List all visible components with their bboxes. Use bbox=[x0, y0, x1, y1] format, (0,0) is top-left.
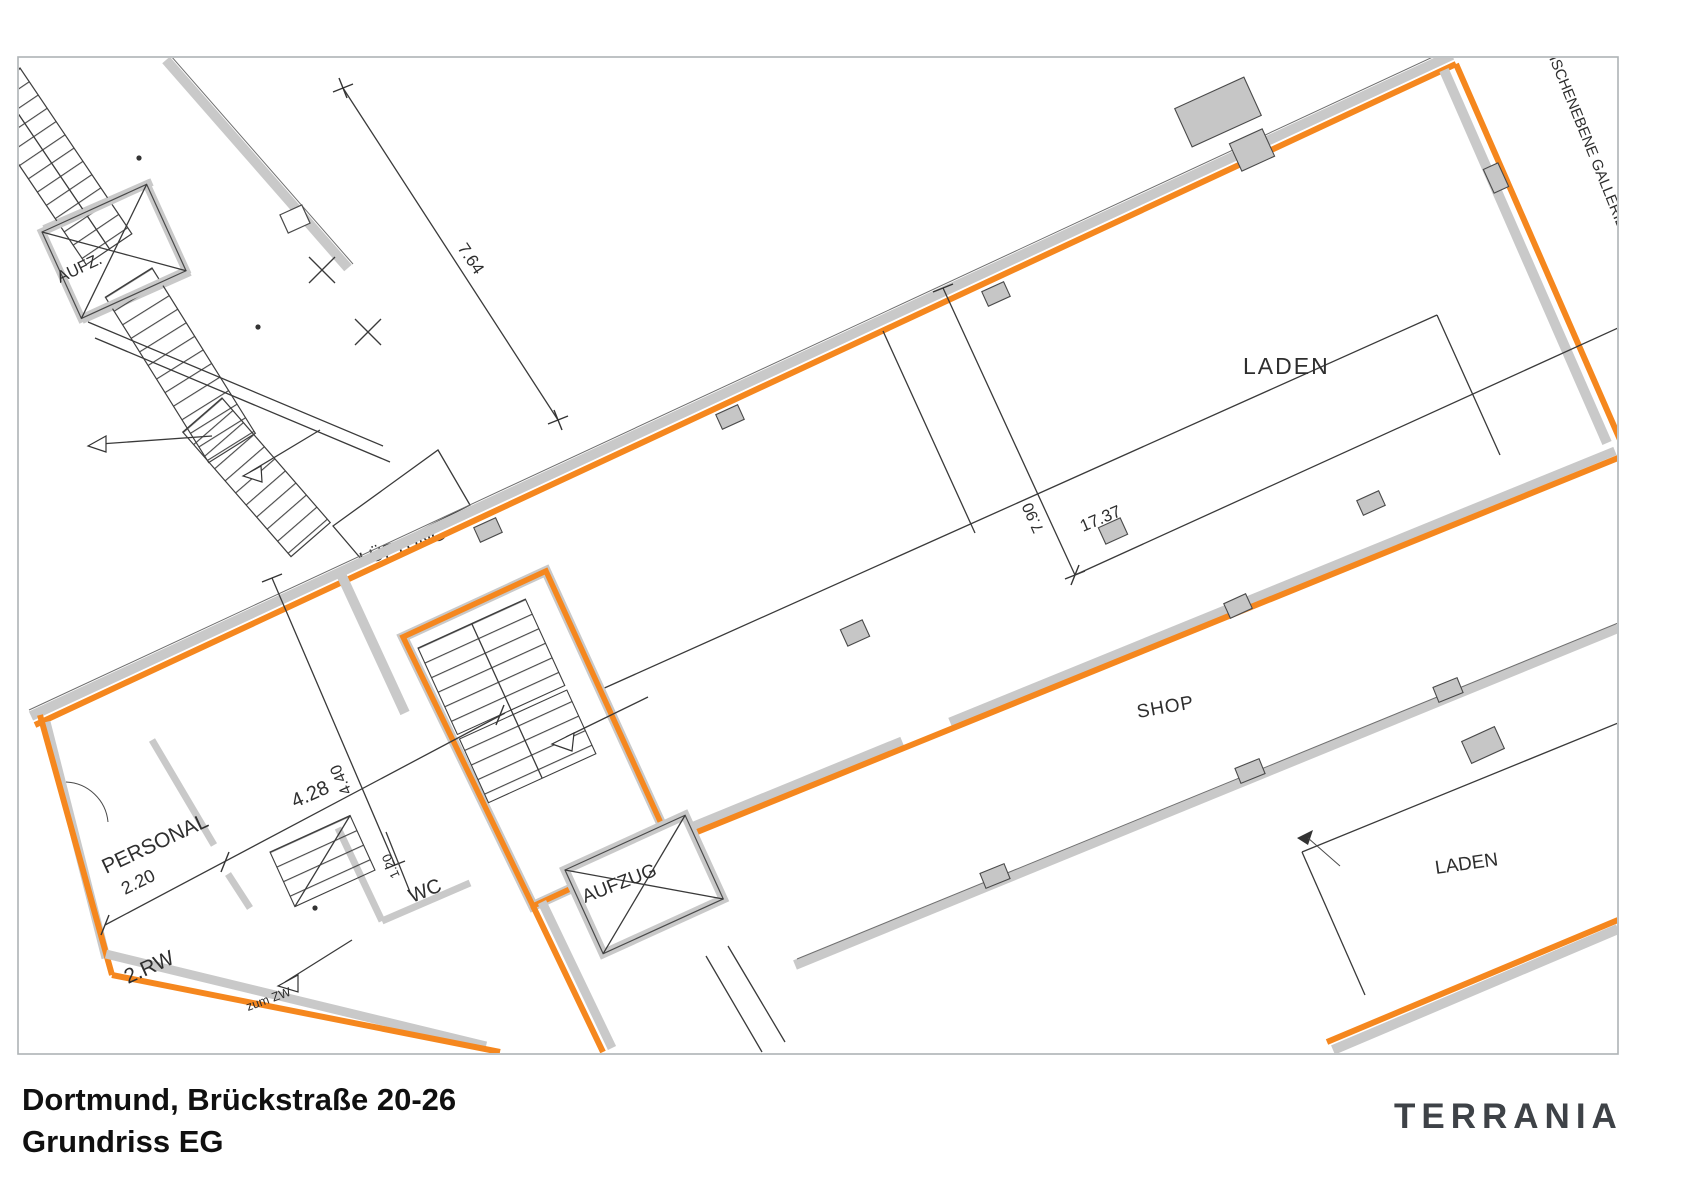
brand-logo: TERRANIA bbox=[1394, 1097, 1623, 1136]
plan-title: Dortmund, Brückstraße 20-26 bbox=[22, 1082, 456, 1117]
label-laden-top: LADEN bbox=[1243, 353, 1330, 379]
title-block: Dortmund, Brückstraße 20-26 Grundriss EG bbox=[22, 1082, 456, 1159]
floorplan-page: AUFZ. LÜFTUNG 7.64 bbox=[0, 0, 1684, 1190]
plan-subtitle: Grundriss EG bbox=[22, 1124, 224, 1159]
